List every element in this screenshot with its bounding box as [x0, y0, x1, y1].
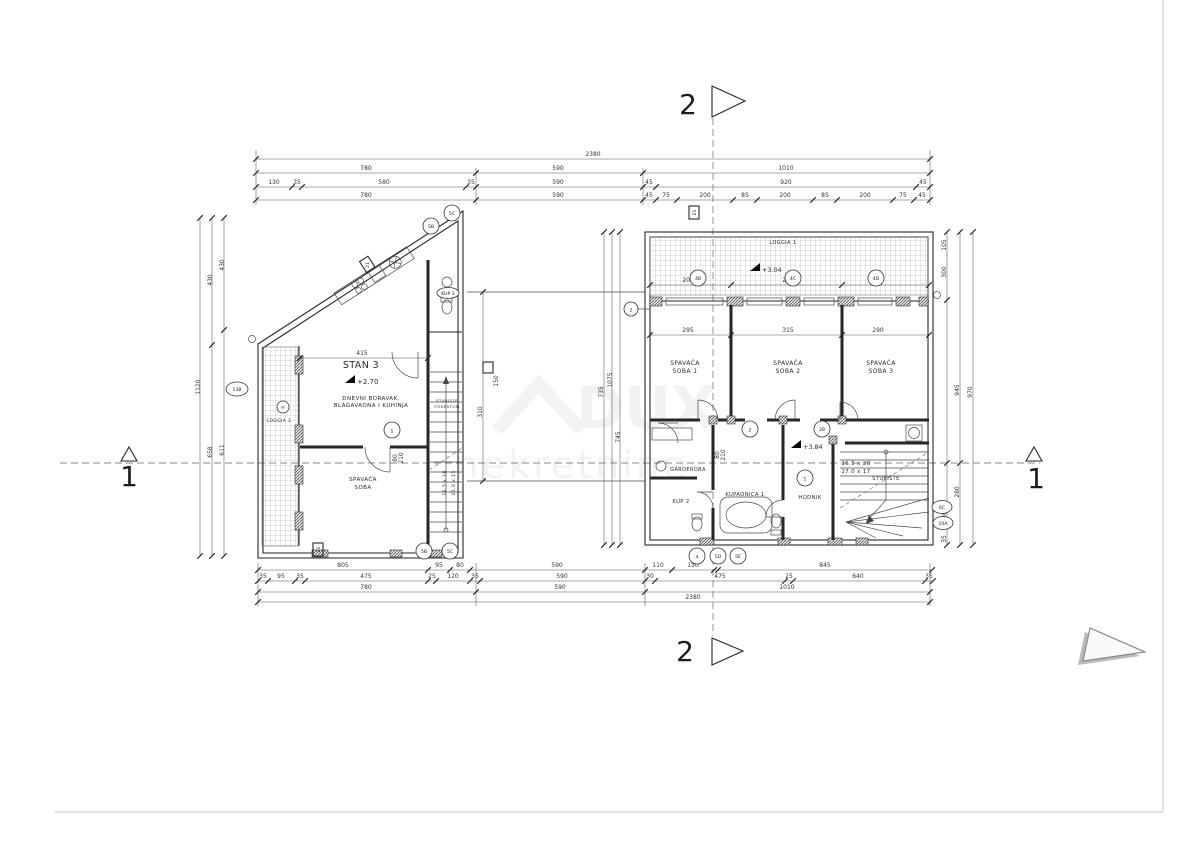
room-label-bedroom2-b: SOBA 2	[776, 368, 801, 375]
dim-label: 590	[554, 584, 566, 591]
dim-label: 1010	[778, 165, 793, 172]
bubble-label: 4	[696, 555, 699, 561]
bubble-label: 2B	[819, 427, 825, 433]
section-marker-top: 2	[679, 86, 745, 121]
section-marker-bottom: 2	[676, 635, 743, 668]
section-lines	[60, 118, 1040, 636]
dim-label: 75	[899, 192, 907, 199]
floorplan-canvas: DUX nekretnine 2 2 1 1 2380 780 590 1010…	[0, 0, 1200, 848]
room-label-living-1: DNEVNI BORAVAK,	[342, 396, 399, 402]
dim-label: 200	[699, 192, 711, 199]
watermark-text-2: nekretnine	[455, 443, 690, 487]
logo-triangle	[1078, 628, 1145, 665]
door-arc	[392, 352, 418, 378]
dim-label: 280	[954, 486, 961, 498]
dim-label: 315	[782, 327, 794, 334]
dimension-chain-right: 300 105 80 35 945 280 970	[941, 232, 974, 545]
door-tag: 210	[720, 449, 727, 461]
floor-plan-left: STAN 3 +2.70 DNEVNI BORAVAK, BLAGAVAONA …	[249, 211, 464, 558]
bubble-label: 13B	[233, 387, 242, 393]
stair-winders	[846, 498, 929, 538]
section-arrow-icon	[712, 86, 745, 117]
dim-label: 590	[551, 562, 563, 569]
dim-label: 2380	[585, 151, 600, 158]
dim-label: 150	[493, 375, 500, 387]
loggia-hatch	[262, 347, 298, 546]
dim-label: 25	[428, 573, 436, 580]
room-label-bedroom1-b: SOBA 1	[673, 368, 698, 375]
bubble-label: 4C	[790, 276, 796, 282]
dim-label: 45	[919, 179, 927, 186]
dim-label: 110	[652, 562, 664, 569]
dim-label: 780	[360, 584, 372, 591]
room-label-bedroom3-a: SPAVAĆA	[866, 360, 896, 367]
room-label-bedroom2-a: SPAVAĆA	[773, 360, 803, 367]
section-arrow-icon	[121, 447, 137, 461]
dim-label: 295	[682, 327, 694, 334]
bubble-label: 2	[630, 308, 633, 314]
section-label: 1	[1027, 462, 1045, 495]
dim-label: 95	[277, 573, 285, 580]
dim-label: 80	[456, 562, 464, 569]
watermark-roof-icon	[497, 384, 581, 430]
dim-label: 200	[779, 192, 791, 199]
mid-connector-box	[483, 362, 493, 373]
bubble-label: 5C	[447, 549, 453, 555]
dim-label: 300	[941, 266, 948, 278]
watermark-text-1: DUX	[576, 374, 716, 442]
dim-label: 200	[859, 192, 871, 199]
dim-label: 85	[741, 192, 749, 199]
dim-label: 35	[471, 573, 479, 580]
dim-label: 35	[925, 573, 933, 580]
dim-label: 970	[967, 386, 974, 398]
dim-label: 590	[552, 179, 564, 186]
dim-label: 735	[598, 386, 605, 398]
room-label-living-2: BLAGAVAONA I KUHINJA	[334, 403, 408, 409]
dim-label: 590	[552, 192, 564, 199]
dim-label: 658	[207, 446, 214, 458]
dim-label: 120	[447, 573, 459, 580]
room-label-garderoba: GARDEROBA	[670, 467, 706, 473]
bubble-label: 4D	[873, 276, 880, 282]
dim-label: 475	[714, 573, 726, 580]
level-label: +3.04	[762, 266, 782, 274]
stair-steps-label-2: 25.0 x 15	[451, 470, 457, 495]
stair-steps-label-1: 16.5 x 16	[442, 470, 448, 495]
section-arrow-icon	[1026, 447, 1042, 461]
dim-label: 75	[662, 192, 670, 199]
room-label-stairs-2: PODESTOM	[434, 404, 459, 409]
dim-label: 780	[360, 192, 372, 199]
room-label-bedroom-2: SOBA	[354, 485, 371, 491]
bubble-label: 5B	[428, 224, 434, 230]
bubble-label: 5E	[735, 554, 741, 560]
dim-label: 920	[780, 179, 792, 186]
room-label-kupaonica1: KUPAONICA 1	[725, 492, 764, 498]
dimension-chain-top: 2380 780 590 1010 130 35 580 35 590 45 9…	[256, 150, 930, 205]
section-label: 2	[676, 635, 694, 668]
stair-steps-label-2: 27.0 x 17	[841, 469, 870, 475]
bubble-label: 4B	[695, 276, 701, 282]
dim-label: 25	[785, 573, 793, 580]
dim-label: 310	[477, 406, 484, 418]
room-label-loggia3: LOGGIA 3	[267, 418, 291, 424]
bubble-label: 10A	[939, 521, 949, 527]
dim-label: 430	[219, 259, 226, 271]
dim-label: 845	[819, 562, 831, 569]
bubble-label: 5C	[449, 211, 455, 217]
dim-label: 945	[954, 384, 961, 396]
dim-label: 30	[646, 573, 654, 580]
dim-label: 2380	[685, 594, 700, 601]
dim-label: 95	[435, 562, 443, 569]
dim-label: 611	[219, 444, 226, 456]
dim-label: 290	[872, 327, 884, 334]
dim-label: 745	[615, 431, 622, 443]
room-label-bedroom1-a: SPAVAĆA	[670, 360, 700, 367]
dim-label: 35	[293, 179, 301, 186]
bubble-label: 6C	[939, 505, 945, 511]
section-arrow-icon	[712, 638, 743, 665]
door-box-label: 21	[365, 262, 371, 268]
section-marker-right: 1	[1026, 447, 1045, 495]
door-tag: 210	[398, 452, 405, 464]
section-label: 1	[120, 460, 138, 493]
stair-steps-label-1: 16.5 x 20	[841, 461, 870, 467]
dim-label: 430	[207, 274, 214, 286]
bubble-label: 1	[804, 477, 807, 483]
stair-arrow-icon	[443, 376, 449, 384]
dim-label: 805	[337, 562, 349, 569]
dimension-chain-bottom: 805 95 80 590 110 150 845 35 95 35 475 2…	[258, 562, 933, 606]
room-label-kup2: KUP 2	[672, 499, 689, 505]
dim-label: 475	[360, 573, 372, 580]
door-box-label: 21	[692, 210, 698, 216]
room-label-bedroom3-b: SOBA 3	[869, 368, 894, 375]
dim-label: 1075	[607, 372, 614, 387]
level-flag-icon	[791, 440, 801, 448]
sink-icon	[442, 277, 452, 287]
door-arc	[365, 447, 390, 472]
bubble-label: 1	[391, 429, 394, 435]
dim-label: 35	[259, 573, 267, 580]
room-label-hodnik: HODNIK	[798, 495, 821, 501]
dimension-chain-left: 1120 430 658 430 611	[195, 218, 226, 556]
dim-label: 130	[268, 179, 280, 186]
bathtub-icon	[720, 497, 772, 533]
door-arc	[697, 492, 713, 508]
room-label-stan3: STAN 3	[343, 360, 379, 371]
toilet-icon	[771, 514, 781, 528]
dim-label: 1120	[195, 379, 202, 394]
dim-label: 45	[645, 192, 653, 199]
dim-label: 415	[356, 350, 368, 357]
room-label-stairs-1: STUBIŠTE	[436, 398, 458, 403]
dim-label: 105	[941, 239, 948, 251]
drawing-sheet: DUX nekretnine 2 2 1 1 2380 780 590 1010…	[0, 0, 1200, 848]
dim-label: 640	[852, 573, 864, 580]
level-label: +3.84	[803, 443, 823, 451]
room-label-loggia1: LOGGIA 1	[769, 240, 796, 246]
room-label-bedroom-1: SPAVAĆA	[349, 476, 377, 483]
section-marker-left: 1	[120, 447, 138, 493]
dim-label: 1010	[779, 584, 794, 591]
dim-label: 35	[941, 535, 948, 543]
level-label: +2.70	[357, 378, 378, 386]
dim-label: 580	[378, 179, 390, 186]
door-box-label: 21	[316, 547, 322, 553]
bubble-label: 5B	[421, 549, 427, 555]
dim-label: 35	[296, 573, 304, 580]
dim-label: 780	[360, 165, 372, 172]
bubble-label: 5D	[715, 554, 722, 560]
level-flag-icon	[345, 375, 355, 383]
dim-label: 590	[556, 573, 568, 580]
bubble-label: 2	[749, 428, 752, 434]
dim-label: 85	[821, 192, 829, 199]
section-label: 2	[679, 88, 697, 121]
dim-label: 590	[552, 165, 564, 172]
bubble-label: H	[281, 405, 284, 411]
room-label-kup3: KUP 3	[441, 291, 454, 297]
dim-label: 45	[645, 179, 653, 186]
dim-label: 45	[918, 192, 926, 199]
dim-label: 35	[467, 179, 475, 186]
room-label-stubiste: STUBIŠTE	[872, 475, 899, 482]
